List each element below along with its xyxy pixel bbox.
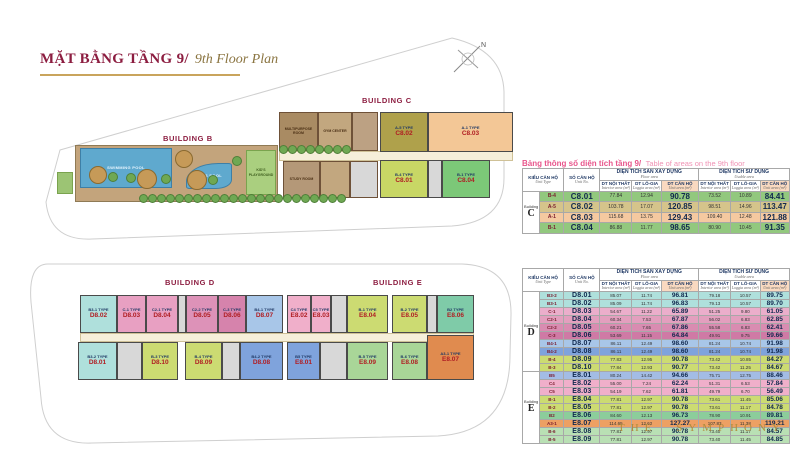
unit-number-label: D8.07 <box>256 312 273 319</box>
apartment-unit: B-3 TYPED8.10 <box>142 342 178 380</box>
header-loggia-area: DT LÔ-GIALoggia area (m²) <box>731 280 760 291</box>
usable-loggia-cell: 10.91 <box>731 411 760 419</box>
amenity-room <box>352 112 378 151</box>
table-row: BuildingDB3-2D8.0185.0711.7496.8179.1810… <box>523 291 790 299</box>
usable-loggia-cell: 11.45 <box>731 435 760 443</box>
building-c-label: BUILDING C <box>362 96 412 105</box>
amenity-room <box>320 161 350 198</box>
unit-number-label: D8.05 <box>193 312 210 319</box>
usable-unit-area-cell: 88.46 <box>760 371 789 379</box>
unit-type-cell: B2 <box>540 411 564 419</box>
table-row: C-3D8.0653.6911.1564.8449.919.7559.66 <box>523 331 790 339</box>
unit-number-label: E8.08 <box>401 359 418 366</box>
table-row: A-5C8.02103.7817.07120.8598.5114.96113.4… <box>523 202 790 213</box>
unit-type-cell: B-6 <box>540 427 564 435</box>
usable-loggia-cell: 11.17 <box>731 403 760 411</box>
table-row: C2-1D8.0460.347.5367.8756.026.8362.85 <box>523 315 790 323</box>
title-underline <box>40 74 240 76</box>
unit-number-label: D8.06 <box>223 312 240 319</box>
usable-unit-area-cell: 113.47 <box>760 202 789 213</box>
header-usable-area-group: DIỆN TÍCH SỬ DỤNGUsable area <box>699 169 790 181</box>
usable-unit-area-cell: 56.49 <box>760 387 789 395</box>
header-interior-area: DT NỘI THẤTInterior area (m²) <box>600 180 632 191</box>
floor-plan-page: MẶT BẰNG TẦNG 9/ 9th Floor Plan N BUILDI… <box>0 0 800 449</box>
floor-interior-cell: 80.24 <box>600 371 632 379</box>
bush-icon <box>208 175 218 185</box>
header-interior-area: DT NỘI THẤTInterior area (m²) <box>699 280 731 291</box>
table-row: C-1D8.0354.6711.2265.8951.259.8061.05 <box>523 307 790 315</box>
usable-interior-cell: 73.61 <box>699 403 731 411</box>
amenity-room: STUDY ROOM <box>283 161 320 198</box>
floor-interior-cell: 86.88 <box>600 223 632 234</box>
usable-interior-cell: 49.79 <box>699 387 731 395</box>
usable-unit-area-cell: 62.41 <box>760 323 789 331</box>
table-row: B2E8.0684.6012.1396.7378.9010.9189.81 <box>523 411 790 419</box>
unit-no-cell: E8.01 <box>564 371 600 379</box>
hedge-bush-icon <box>220 194 229 203</box>
usable-unit-area-cell: 89.81 <box>760 411 789 419</box>
unit-number-label: C8.02 <box>395 130 412 137</box>
usable-interior-cell: 51.25 <box>699 307 731 315</box>
table-row: C4E8.0255.007.2462.2451.316.5357.84 <box>523 379 790 387</box>
table-row: BuildingCB-4C8.0177.8412.9490.7873.5210.… <box>523 191 790 202</box>
header-interior-area: DT NỘI THẤTInterior area (m²) <box>600 280 632 291</box>
floor-unit-area-cell: 90.77 <box>661 363 698 371</box>
floor-interior-cell: 53.69 <box>600 331 632 339</box>
building-b-label: BUILDING B <box>163 134 213 143</box>
hedge-bush-icon <box>279 145 288 154</box>
page-title-vi: MẶT BẰNG TẦNG 9/ <box>40 51 189 67</box>
brand-logo-text: THE SYMPHONY <box>618 422 786 434</box>
hedge-bush-icon <box>324 145 333 154</box>
floor-loggia-cell: 12.49 <box>632 347 661 355</box>
usable-interior-cell: 79.18 <box>699 291 731 299</box>
building-cell: BuildingC <box>523 191 540 233</box>
header-floor-area-group: DIỆN TÍCH SÀN XÂY DỰNGFloor area <box>600 169 699 181</box>
floor-interior-cell: 85.09 <box>600 299 632 307</box>
unit-number-label: D8.10 <box>151 359 168 366</box>
floor-interior-cell: 54.67 <box>600 307 632 315</box>
usable-interior-cell: 81.24 <box>699 339 731 347</box>
hedge-bush-icon <box>211 194 220 203</box>
usable-interior-cell: 75.71 <box>699 371 731 379</box>
unit-number-label: C8.03 <box>462 130 479 137</box>
unit-number-label: D8.08 <box>253 359 270 366</box>
unit-type-cell: C2-1 <box>540 315 564 323</box>
unit-number-label: D8.09 <box>195 359 212 366</box>
floor-loggia-cell: 12.49 <box>632 339 661 347</box>
unit-type-cell: B5 <box>540 371 564 379</box>
table-row: B-3D8.1077.8412.9390.7773.4211.2584.67 <box>523 363 790 371</box>
apartment-unit: B-4 TYPED8.09 <box>185 342 222 380</box>
usable-interior-cell: 109.40 <box>699 212 731 223</box>
unit-type-cell: C-3 <box>540 331 564 339</box>
hedge-bush-icon <box>184 194 193 203</box>
floor-unit-area-cell: 61.81 <box>661 387 698 395</box>
floor-loggia-cell: 7.24 <box>632 379 661 387</box>
usable-loggia-cell: 6.70 <box>731 387 760 395</box>
floor-loggia-cell: 12.94 <box>632 191 661 202</box>
table-row: A-1C8.03115.6813.75129.43109.4012.48121.… <box>523 212 790 223</box>
unit-no-cell: C8.04 <box>564 223 600 234</box>
usable-unit-area-cell: 84.85 <box>760 435 789 443</box>
floor-interior-cell: 86.11 <box>600 347 632 355</box>
header-unit-no: SỐ CĂN HỘUnit No. <box>564 169 600 192</box>
usable-unit-area-cell: 85.06 <box>760 395 789 403</box>
table-row: B-5E8.0977.8112.9790.7873.4011.4584.85 <box>523 435 790 443</box>
unit-number-label: C8.01 <box>395 177 412 184</box>
building-e-label: BUILDING E <box>373 278 422 287</box>
usable-unit-area-cell: 89.70 <box>760 299 789 307</box>
usable-loggia-cell: 12.75 <box>731 371 760 379</box>
building-cell: BuildingD <box>523 291 540 371</box>
usable-loggia-cell: 11.45 <box>731 395 760 403</box>
floor-unit-area-cell: 64.84 <box>661 331 698 339</box>
bush-icon <box>161 174 171 184</box>
unit-number-label: D8.03 <box>123 312 140 319</box>
floor-interior-cell: 77.84 <box>600 363 632 371</box>
unit-number-label: E8.02 <box>291 312 308 319</box>
usable-loggia-cell: 10.85 <box>731 355 760 363</box>
unit-type-cell: A-1 <box>540 212 564 223</box>
unit-type-cell: B4-2 <box>540 347 564 355</box>
apartment-unit: A-1 TYPEC8.03 <box>428 112 513 152</box>
table-row: B3-1D8.0285.0911.7496.8379.1310.5789.70 <box>523 299 790 307</box>
unit-type-cell: B-1 <box>540 223 564 234</box>
usable-interior-cell: 73.61 <box>699 395 731 403</box>
unit-type-cell: B3-2 <box>540 291 564 299</box>
header-floor-area-group: DIỆN TÍCH SÀN XÂY DỰNGFloor area <box>600 269 699 281</box>
hedge-bush-icon <box>256 194 265 203</box>
kids-playground-label: KID'S PLAYGROUND <box>247 168 275 176</box>
header-unit-area: DT CĂN HỘUnit area (m²) <box>760 280 789 291</box>
floor-unit-area-cell: 98.60 <box>661 339 698 347</box>
hedge-bush-icon <box>148 194 157 203</box>
usable-interior-cell: 80.90 <box>699 223 731 234</box>
hedge-bush-icon <box>283 194 292 203</box>
apartment-unit: B5 TYPEE8.01 <box>287 342 320 380</box>
floor-interior-cell: 77.81 <box>600 395 632 403</box>
unit-no-cell: C8.03 <box>564 212 600 223</box>
floor-loggia-cell: 17.07 <box>632 202 661 213</box>
page-title-en: 9th Floor Plan <box>195 52 278 67</box>
usable-loggia-cell: 10.74 <box>731 347 760 355</box>
floor-interior-cell: 103.78 <box>600 202 632 213</box>
bush-icon <box>126 173 136 183</box>
service-core <box>331 295 347 333</box>
floor-loggia-cell: 11.74 <box>632 299 661 307</box>
service-core <box>320 342 347 380</box>
usable-loggia-cell: 14.96 <box>731 202 760 213</box>
apartment-unit: C-1 TYPED8.03 <box>117 295 146 333</box>
hedge-bush-icon <box>288 145 297 154</box>
apartment-unit: C5 TYPEE8.03 <box>311 295 331 333</box>
unit-number-label: E8.06 <box>447 312 464 319</box>
usable-interior-cell: 56.02 <box>699 315 731 323</box>
floor-loggia-cell: 11.15 <box>632 331 661 339</box>
floor-unit-area-cell: 90.78 <box>661 403 698 411</box>
floor-loggia-cell: 12.97 <box>632 403 661 411</box>
hedge-bush-icon <box>315 145 324 154</box>
unit-number-label: E8.04 <box>359 312 376 319</box>
usable-unit-area-cell: 84.78 <box>760 403 789 411</box>
floor-unit-area-cell: 96.83 <box>661 299 698 307</box>
usable-unit-area-cell: 59.66 <box>760 331 789 339</box>
floor-interior-cell: 85.07 <box>600 291 632 299</box>
floor-unit-area-cell: 96.81 <box>661 291 698 299</box>
hedge-bush-icon <box>175 194 184 203</box>
hedge-bush-icon <box>306 145 315 154</box>
hedge-bush-icon <box>337 194 346 203</box>
floor-loggia-cell: 11.22 <box>632 307 661 315</box>
kids-playground: KID'S PLAYGROUND <box>246 150 276 195</box>
usable-loggia-cell: 10.74 <box>731 339 760 347</box>
floor-loggia-cell: 14.42 <box>632 371 661 379</box>
unit-type-cell: C5 <box>540 387 564 395</box>
unit-no-cell: D8.05 <box>564 323 600 331</box>
usable-unit-area-cell: 91.98 <box>760 347 789 355</box>
hedge-bush-icon <box>319 194 328 203</box>
usable-unit-area-cell: 89.75 <box>760 291 789 299</box>
hedge-bush-icon <box>229 194 238 203</box>
service-core <box>117 342 142 380</box>
bush-icon <box>108 172 118 182</box>
usable-loggia-cell: 10.57 <box>731 299 760 307</box>
unit-no-cell: D8.10 <box>564 363 600 371</box>
header-loggia-area: DT LÔ-GIALoggia area (m²) <box>632 180 661 191</box>
unit-no-cell: D8.09 <box>564 355 600 363</box>
floor-loggia-cell: 12.93 <box>632 363 661 371</box>
usable-interior-cell: 98.51 <box>699 202 731 213</box>
unit-type-cell: B-2 <box>540 403 564 411</box>
hedge-bush-icon <box>310 194 319 203</box>
floor-interior-cell: 60.21 <box>600 323 632 331</box>
service-core <box>428 160 442 198</box>
table-row: B4-2D8.0886.1112.4998.6081.2410.7491.98 <box>523 347 790 355</box>
floor-loggia-cell: 12.13 <box>632 411 661 419</box>
apartment-unit: B-1 TYPEE8.04 <box>347 295 388 333</box>
buildings-d-e-areas: KIỂU CĂN HỘUnit TypeSỐ CĂN HỘUnit No.DIỆ… <box>522 268 790 444</box>
unit-number-label: E8.05 <box>401 312 418 319</box>
apartment-unit: B-2 TYPEE8.05 <box>392 295 427 333</box>
unit-no-cell: E8.02 <box>564 379 600 387</box>
floor-interior-cell: 60.34 <box>600 315 632 323</box>
apartment-unit: B-5 TYPEE8.09 <box>347 342 388 380</box>
usable-unit-area-cell: 84.41 <box>760 191 789 202</box>
tree-icon <box>137 169 157 189</box>
unit-type-cell: B-1 <box>540 395 564 403</box>
floor-unit-area-cell: 96.73 <box>661 411 698 419</box>
unit-number-label: D8.02 <box>90 312 107 319</box>
floor-loggia-cell: 7.65 <box>632 323 661 331</box>
unit-number-label: E8.03 <box>313 312 330 319</box>
amenity-room <box>350 161 378 198</box>
floor-interior-cell: 84.60 <box>600 411 632 419</box>
floor-unit-area-cell: 94.66 <box>661 371 698 379</box>
areas-table-caption-en: Table of areas on the 9th floor <box>646 159 745 168</box>
floor-interior-cell: 77.83 <box>600 355 632 363</box>
tree-icon <box>175 150 193 168</box>
apartment-unit: A3-1 TYPEE8.07 <box>427 335 474 380</box>
unit-no-cell: E8.05 <box>564 403 600 411</box>
hedge-bush-icon <box>193 194 202 203</box>
unit-number-label: D8.04 <box>153 312 170 319</box>
usable-unit-area-cell: 84.67 <box>760 363 789 371</box>
usable-unit-area-cell: 121.88 <box>760 212 789 223</box>
swimming-pool-label: SWIMMING POOL <box>107 166 145 171</box>
apartment-unit: C2-2 TYPED8.05 <box>186 295 218 333</box>
amenity-room-label: STUDY ROOM <box>289 177 315 183</box>
floor-interior-cell: 77.81 <box>600 403 632 411</box>
compass-north-label: N <box>481 42 486 49</box>
floor-unit-area-cell: 98.65 <box>661 223 698 234</box>
hedge-bush-icon <box>297 145 306 154</box>
usable-interior-cell: 73.40 <box>699 435 731 443</box>
usable-loggia-cell: 10.89 <box>731 191 760 202</box>
unit-type-cell: B-5 <box>540 435 564 443</box>
building-c-areas: KIỂU CĂN HỘUnit TypeSỐ CĂN HỘUnit No.DIỆ… <box>522 168 790 234</box>
service-core <box>178 295 186 333</box>
floor-unit-area-cell: 90.78 <box>661 191 698 202</box>
hedge-bush-icon <box>292 194 301 203</box>
unit-no-cell: E8.03 <box>564 387 600 395</box>
unit-no-cell: E8.07 <box>564 419 600 427</box>
unit-no-cell: D8.03 <box>564 307 600 315</box>
apartment-unit: B4-1 TYPED8.07 <box>246 295 283 333</box>
floor-unit-area-cell: 90.78 <box>661 435 698 443</box>
unit-type-cell: A-5 <box>540 202 564 213</box>
floor-interior-cell: 55.00 <box>600 379 632 387</box>
usable-interior-cell: 78.90 <box>699 411 731 419</box>
table-row: B-2E8.0577.8112.9790.7873.6111.1784.78 <box>523 403 790 411</box>
floor-unit-area-cell: 67.87 <box>661 315 698 323</box>
hedge-bush-icon <box>166 194 175 203</box>
unit-no-cell: D8.04 <box>564 315 600 323</box>
floor-interior-cell: 54.19 <box>600 387 632 395</box>
hedge-bush-icon <box>139 194 148 203</box>
unit-no-cell: C8.02 <box>564 202 600 213</box>
floor-interior-cell: 77.84 <box>600 191 632 202</box>
unit-no-cell: E8.06 <box>564 411 600 419</box>
floor-loggia-cell: 7.53 <box>632 315 661 323</box>
unit-no-cell: E8.04 <box>564 395 600 403</box>
header-usable-area-group: DIỆN TÍCH SỬ DỤNGUsable area <box>699 269 790 281</box>
floor-loggia-cell: 11.77 <box>632 223 661 234</box>
header-unit-no: SỐ CĂN HỘUnit No. <box>564 269 600 292</box>
unit-type-cell: C-1 <box>540 307 564 315</box>
floor-interior-cell: 115.68 <box>600 212 632 223</box>
building-d-label: BUILDING D <box>165 278 215 287</box>
apartment-unit: B-1 TYPEC8.04 <box>442 160 490 198</box>
header-loggia-area: DT LÔ-GIALoggia area (m²) <box>731 180 760 191</box>
amenity-room-label: MULTIPURPOSE ROOM <box>280 127 317 137</box>
hedge-bush-icon <box>301 194 310 203</box>
tree-icon <box>187 170 207 190</box>
unit-type-cell: C4 <box>540 379 564 387</box>
hedge-bush-icon <box>238 194 247 203</box>
unit-type-cell: B-4 <box>540 355 564 363</box>
unit-type-cell: B-3 <box>540 363 564 371</box>
unit-no-cell: D8.08 <box>564 347 600 355</box>
apartment-unit: B2 TYPEE8.06 <box>437 295 474 333</box>
hedge-bush-icon <box>265 194 274 203</box>
header-unit-type: KIỂU CĂN HỘUnit Type <box>523 169 564 192</box>
hedge-bush-icon <box>274 194 283 203</box>
unit-number-label: E8.01 <box>295 359 312 366</box>
floor-loggia-cell: 12.97 <box>632 395 661 403</box>
table-row: B4-1D8.0786.1112.4998.6081.2410.7491.98 <box>523 339 790 347</box>
unit-no-cell: D8.02 <box>564 299 600 307</box>
floor-unit-area-cell: 65.89 <box>661 307 698 315</box>
hedge-bush-icon <box>157 194 166 203</box>
usable-loggia-cell: 9.75 <box>731 331 760 339</box>
usable-interior-cell: 49.91 <box>699 331 731 339</box>
apartment-unit: B4-2 TYPED8.08 <box>240 342 283 380</box>
floor-unit-area-cell: 120.85 <box>661 202 698 213</box>
building-cell: BuildingE <box>523 371 540 443</box>
header-interior-area: DT NỘI THẤTInterior area (m²) <box>699 180 731 191</box>
unit-number-label: C8.04 <box>457 177 474 184</box>
apartment-unit: B-6 TYPEE8.08 <box>392 342 427 380</box>
usable-unit-area-cell: 91.98 <box>760 339 789 347</box>
unit-type-cell: B-4 <box>540 191 564 202</box>
unit-type-cell: B3-1 <box>540 299 564 307</box>
usable-loggia-cell: 12.48 <box>731 212 760 223</box>
header-unit-area: DT CĂN HỘUnit area (m²) <box>661 180 698 191</box>
usable-unit-area-cell: 62.85 <box>760 315 789 323</box>
table-row: B-1C8.0486.8811.7798.6580.9010.4591.35 <box>523 223 790 234</box>
bush-icon <box>232 156 242 166</box>
table-row: BuildingEB5E8.0180.2414.4294.6675.7112.7… <box>523 371 790 379</box>
hedge-bush-icon <box>202 194 211 203</box>
usable-unit-area-cell: 84.27 <box>760 355 789 363</box>
apartment-unit: B-4 TYPEC8.01 <box>380 160 428 198</box>
floor-unit-area-cell: 67.86 <box>661 323 698 331</box>
header-unit-area: DT CĂN HỘUnit area (m²) <box>760 180 789 191</box>
tree-icon <box>89 166 107 184</box>
building-c-areas-table: KIỂU CĂN HỘUnit TypeSỐ CĂN HỘUnit No.DIỆ… <box>522 168 790 234</box>
floor-unit-area-cell: 62.24 <box>661 379 698 387</box>
table-row: C5E8.0354.197.6261.8149.796.7056.49 <box>523 387 790 395</box>
floor-loggia-cell: 11.74 <box>632 291 661 299</box>
floor-loggia-cell: 13.75 <box>632 212 661 223</box>
hedge-bush-icon <box>247 194 256 203</box>
corridor <box>80 333 474 342</box>
floor-loggia-cell: 7.62 <box>632 387 661 395</box>
floor-loggia-cell: 12.97 <box>632 435 661 443</box>
apartment-unit: B3-2 TYPED8.01 <box>78 342 117 380</box>
floor-unit-area-cell: 129.43 <box>661 212 698 223</box>
unit-no-cell: D8.07 <box>564 339 600 347</box>
usable-interior-cell: 73.42 <box>699 355 731 363</box>
header-unit-area: DT CĂN HỘUnit area (m²) <box>661 280 698 291</box>
page-title: MẶT BẰNG TẦNG 9/ 9th Floor Plan <box>40 50 278 68</box>
unit-no-cell: E8.09 <box>564 435 600 443</box>
table-row: B-1E8.0477.8112.9790.7873.6111.4585.06 <box>523 395 790 403</box>
usable-loggia-cell: 6.53 <box>731 379 760 387</box>
table-row: C2-2D8.0560.217.6567.8655.586.8362.41 <box>523 323 790 331</box>
compass-icon: N <box>448 36 490 78</box>
usable-loggia-cell: 10.57 <box>731 291 760 299</box>
floor-interior-cell: 86.11 <box>600 339 632 347</box>
usable-interior-cell: 51.31 <box>699 379 731 387</box>
unit-number-label: D8.01 <box>89 359 106 366</box>
unit-no-cell: C8.01 <box>564 191 600 202</box>
usable-loggia-cell: 11.25 <box>731 363 760 371</box>
amenity-room-label: GYM CENTER <box>322 129 347 135</box>
header-loggia-area: DT LÔ-GIALoggia area (m²) <box>632 280 661 291</box>
hedge-bush-icon <box>328 194 337 203</box>
